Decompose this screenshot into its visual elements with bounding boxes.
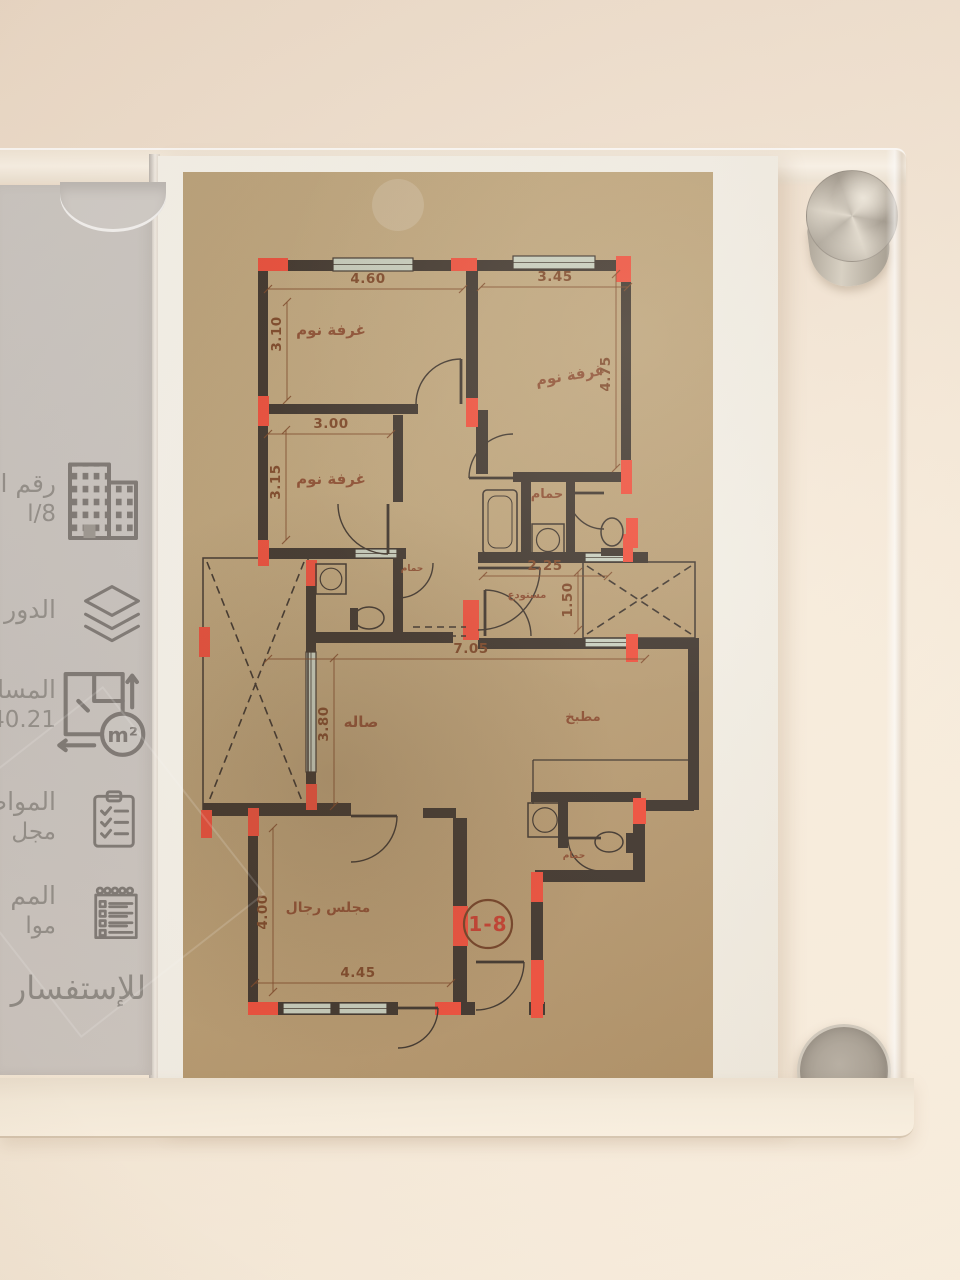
svg-text:3.10: 3.10 [269,316,285,351]
buildings-icon [58,457,148,547]
svg-text:حمام: حمام [531,487,564,502]
specs-value: مجل [0,818,56,846]
standoff-screw-top [806,170,898,300]
svg-text:3.00: 3.00 [313,416,348,432]
svg-text:3.15: 3.15 [268,464,284,499]
paper-spot [372,179,424,231]
layers-icon [76,577,148,649]
standoff-cap-top [806,170,898,262]
svg-text:حمام: حمام [563,851,586,861]
svg-text:غرفة نوم: غرفة نوم [296,470,366,488]
svg-text:مستودع: مستودع [508,590,547,601]
doors [338,359,604,1048]
acrylic-frame-right-edge [886,150,908,1140]
unit-badge: 1-8 [464,900,512,948]
svg-text:غرفة نوم: غرفة نوم [296,321,366,339]
area-label: المسا [0,675,56,706]
unit-number-text: رقم ال ا/8 [0,469,56,528]
svg-text:مجلس رجال: مجلس رجال [286,900,371,916]
features-text: المم موا [10,881,56,940]
svg-text:صاله: صاله [344,713,379,731]
info-row-unit-number: رقم ال ا/8 [0,455,152,551]
svg-text:مطبخ: مطبخ [565,710,600,725]
floor-text: الدور [4,595,56,626]
features-label: المم [10,881,56,912]
svg-text:4.60: 4.60 [350,271,385,287]
notes-icon [84,879,148,943]
specs-text: المواص مجل [0,787,56,846]
area-icon: m² [53,663,148,758]
photo-wall-floor-plan-sign: 4.603.453.104.753.003.152.251.507.053.80… [0,0,960,1280]
svg-text:3.45: 3.45 [537,269,572,285]
square-meter-glyph: m² [107,723,137,747]
unit-number-value: ا/8 [27,500,56,528]
features-value: موا [10,912,56,940]
area-text: المسا 40.21 [0,675,56,734]
area-value: 40.21 [0,706,56,734]
acrylic-frame-bottom-edge [0,1078,914,1138]
unit-number-label: رقم ال [0,469,56,500]
clipboard-check-icon [80,785,148,853]
svg-text:غرفة نوم: غرفة نوم [534,361,606,390]
shafts [203,558,695,810]
inquiries-label: للإستفسار : [0,969,146,1007]
floor-label: الدور [4,595,56,626]
floor-plan-drawing: 4.603.453.104.753.003.152.251.507.053.80… [183,172,713,1087]
svg-text:1.50: 1.50 [560,582,576,617]
svg-text:حمام: حمام [401,564,424,574]
floor-plan-print-area: 4.603.453.104.753.003.152.251.507.053.80… [183,172,713,1087]
svg-text:3.80: 3.80 [316,706,332,741]
info-row-floor: الدور [0,573,152,653]
svg-text:1-8: 1-8 [468,912,507,936]
svg-text:7.05: 7.05 [453,641,488,657]
svg-text:2.25: 2.25 [527,558,562,574]
info-row-specs: المواص مجل [0,781,152,863]
info-row-area: المسا 40.21 m² [0,663,152,763]
info-row-features: المم موا [0,873,152,953]
floor-plan-sheet: 4.603.453.104.753.003.152.251.507.053.80… [158,156,778,1128]
specs-label: المواص [0,787,56,818]
info-panel: رقم ال ا/8 الدور [0,185,152,1075]
svg-text:4.00: 4.00 [255,894,271,929]
svg-text:4.45: 4.45 [340,965,375,981]
